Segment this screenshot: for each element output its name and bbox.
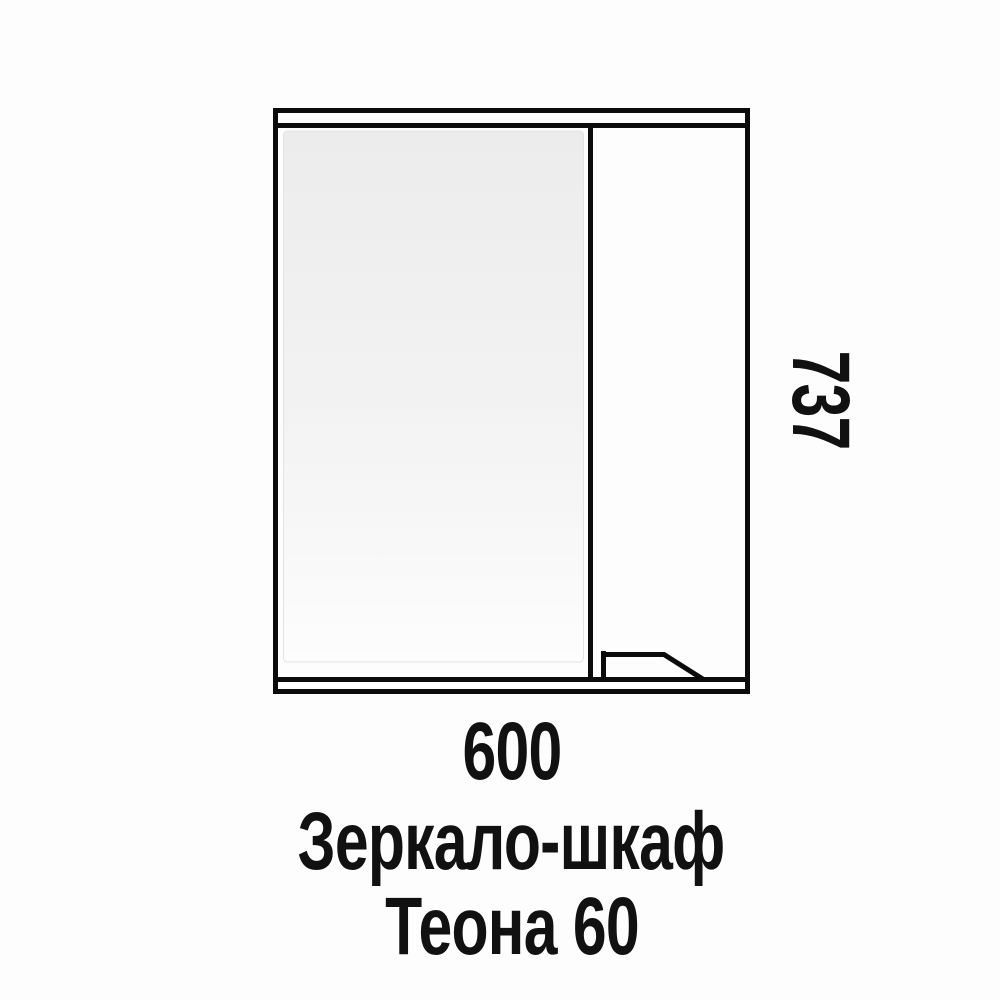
side-shelf-chamfer-edge <box>603 655 704 680</box>
product-dimension-diagram: 600 737 Зеркало-шкаф Теона 60 <box>0 0 1000 1000</box>
product-type-title: Зеркало-шкаф <box>223 801 800 883</box>
product-type-text: Зеркало-шкаф <box>298 801 725 883</box>
product-model-title: Теона 60 <box>341 886 684 968</box>
width-dimension-value: 600 <box>462 711 561 793</box>
height-dimension-label: 737 <box>779 333 861 467</box>
product-model-text: Теона 60 <box>385 886 639 968</box>
height-dimension-value: 737 <box>779 350 861 449</box>
width-dimension-label: 600 <box>445 711 579 793</box>
mirror-glass-panel <box>284 131 584 662</box>
